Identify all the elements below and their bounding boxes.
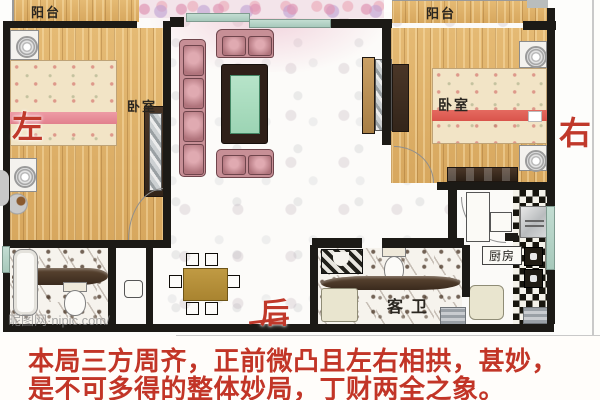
window-kitchen (546, 206, 555, 270)
lamp-icon (16, 36, 38, 58)
wall-segment (547, 8, 555, 324)
bay-window-sill (249, 19, 331, 28)
exterior-floral-area (137, 0, 384, 18)
direction-left-label: 左 (12, 102, 43, 147)
dining-chair (186, 253, 199, 266)
kitchen-mat (523, 307, 549, 324)
dining-chair (169, 275, 182, 288)
balcony-right-sill (527, 0, 548, 8)
caption-area: 本局三方周齐，正前微凸且左右相拱，甚妙， 是不可多得的整体妙局，丁财两全之象。 (0, 336, 600, 400)
nightstand (519, 145, 547, 171)
dresser-right (447, 167, 518, 182)
wall-segment (3, 21, 137, 28)
lamp-icon (525, 46, 547, 68)
bath-mat (440, 307, 466, 325)
bay-window-sill (186, 13, 250, 22)
nightstand (10, 30, 39, 60)
dining-chair (186, 302, 199, 315)
nightstand (519, 41, 547, 68)
wardrobe-mirror (149, 113, 162, 191)
hall-door-leaf (124, 280, 143, 298)
wall-segment (170, 17, 184, 27)
wall-segment (382, 21, 391, 145)
sofa-loveseat-bottom (216, 149, 274, 178)
dining-chair (205, 302, 218, 315)
dining-chair (227, 275, 240, 288)
cabinet-frame (362, 57, 375, 134)
nightstand (8, 158, 37, 192)
wall-segment (146, 248, 153, 325)
direction-back-label: 后 (260, 290, 289, 332)
stove-burner-icon (524, 269, 543, 288)
kitchen-counter (490, 212, 512, 232)
wall-segment (462, 245, 470, 297)
exterior-fixture (0, 170, 9, 206)
fridge-icon (520, 206, 547, 238)
watermark: 昵图网·nipic.com/ (8, 310, 110, 329)
kitchen-counter (466, 192, 490, 242)
wall-segment (505, 233, 518, 241)
dining-table (183, 268, 228, 301)
room-label-guest-bathroom: 客卫 (387, 293, 435, 317)
plan-right-border (592, 0, 594, 336)
room-label-bedroom-left: 卧室 (127, 96, 157, 115)
sofa-long (179, 39, 206, 177)
room-label-balcony-right: 阳台 (426, 3, 456, 22)
wall-segment (312, 238, 362, 248)
kitchen-table (469, 285, 504, 320)
lamp-icon (14, 166, 36, 188)
stove-burner-icon (524, 247, 543, 266)
shower-tray (321, 288, 358, 322)
caption-line-2: 是不可多得的整体妙局，丁财两全之象。 (28, 369, 505, 400)
wall-segment (3, 240, 171, 248)
bed-tag (528, 111, 542, 122)
room-label-balcony-left: 阳台 (31, 2, 61, 21)
wall-segment (382, 238, 464, 248)
bathtub (13, 249, 38, 316)
dining-chair (205, 253, 218, 266)
direction-right-label: 右 (559, 108, 591, 154)
wall-segment (310, 245, 318, 325)
balcony-right (392, 0, 548, 23)
wall-segment (163, 21, 171, 242)
sofa-loveseat-top (216, 29, 274, 58)
window-left (2, 246, 10, 273)
room-label-bedroom-right: 卧室 (438, 95, 470, 115)
room-label-kitchen: 厨房 (482, 246, 522, 265)
coffee-table (221, 64, 268, 144)
wall-segment (437, 182, 550, 190)
lamp-icon (525, 150, 547, 172)
floor-plan-page: 阳台 阳台 卧室 卧室 客卫 厨房 左 右 后 昵图网·nipic.com/ 本… (0, 0, 600, 400)
tv-panel (392, 64, 409, 132)
